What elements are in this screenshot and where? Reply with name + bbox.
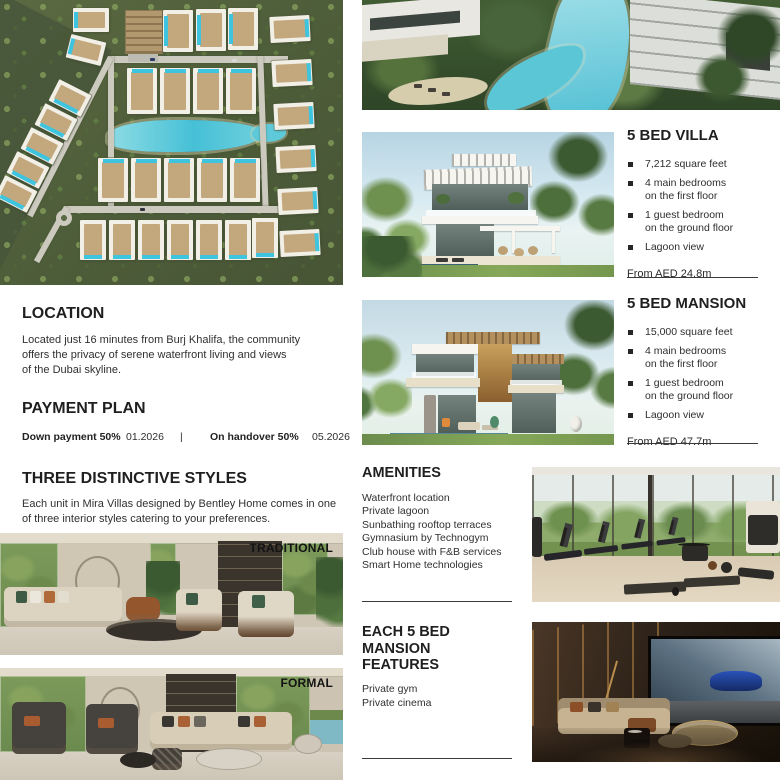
features-list: Private gym Private cinema <box>362 683 492 710</box>
cushion <box>238 716 250 727</box>
spec-item: 7,212 square feet <box>627 158 761 171</box>
lounger <box>428 88 436 92</box>
villa-block <box>228 8 258 50</box>
villa-block <box>279 229 320 257</box>
villa-block <box>163 10 193 52</box>
cushion <box>570 702 583 712</box>
styles-section: THREE DISTINCTIVE STYLES Each unit in Mi… <box>22 470 362 527</box>
cushion <box>252 595 265 608</box>
mansion-slab <box>508 385 564 393</box>
cross-trainer <box>532 517 542 557</box>
amenity-item: Smart Home technologies <box>362 559 520 573</box>
bullet-square-icon <box>628 213 633 218</box>
foreground-plants <box>362 236 422 277</box>
mansion-center-tower <box>478 344 512 402</box>
down-payment-label: Down payment 50% <box>22 431 121 443</box>
canopy-column <box>552 231 555 253</box>
spec-item: 15,000 square feet <box>627 326 761 339</box>
sun-lounger <box>452 258 464 262</box>
car-dot <box>232 59 237 62</box>
cushion <box>606 702 619 712</box>
rattan-chair <box>528 246 538 255</box>
payment-plan-row: Down payment 50% 01.2026 | On handover 5… <box>22 431 352 445</box>
bullet-square-icon <box>628 245 633 250</box>
kettlebell <box>672 587 679 596</box>
villa-block <box>271 59 312 87</box>
cushion <box>16 591 27 603</box>
cushion <box>58 591 69 603</box>
leather-ottoman <box>126 597 160 621</box>
mansion-wood-roof <box>446 332 540 344</box>
villa-block <box>273 102 314 130</box>
armchair <box>238 591 294 637</box>
lagoon-hero-image <box>362 0 780 110</box>
villa-block <box>193 68 223 114</box>
amenity-item: Sunbathing rooftop terraces <box>362 519 520 533</box>
amenity-item: Gymnasium by Technogym <box>362 532 520 546</box>
payment-plan-section: PAYMENT PLAN Down payment 50% 01.2026 | … <box>22 400 352 445</box>
patterned-pouf <box>152 748 182 770</box>
screen-car <box>710 671 762 691</box>
side-table <box>294 734 322 754</box>
features-title: EACH 5 BED MANSION FEATURES <box>362 624 492 674</box>
car-dot <box>140 208 145 211</box>
gym-image <box>532 467 780 602</box>
villa-block <box>73 8 109 32</box>
lounger <box>414 84 422 88</box>
villa-roof-canopy <box>452 154 516 166</box>
egg-chair-green <box>490 416 499 428</box>
treadmill <box>584 525 618 553</box>
bullet-square-icon <box>628 413 633 418</box>
dark-armchair <box>12 702 66 754</box>
formal-interior-image: FORMAL <box>0 668 343 780</box>
mansion-render-image <box>362 300 614 445</box>
balcony-planter <box>508 192 524 204</box>
palm-overlay <box>694 0 780 110</box>
cushion <box>98 718 114 728</box>
bullet-square-icon <box>628 181 633 186</box>
bullet-square-icon <box>628 349 633 354</box>
villa-block <box>197 158 227 202</box>
location-title: LOCATION <box>22 305 342 323</box>
villa-block <box>98 158 128 202</box>
treadmill <box>544 527 582 558</box>
masterplan-aerial-image <box>0 0 343 285</box>
villa-block <box>80 220 106 260</box>
car-dot <box>150 58 155 61</box>
divider <box>362 758 512 759</box>
treadmill <box>657 520 686 544</box>
stone-pillar <box>424 395 436 435</box>
villa-block <box>226 68 256 114</box>
spec-item: 4 main bedrooms on the first floor <box>627 177 761 203</box>
masterplan-road <box>64 206 290 213</box>
feature-item: Private gym <box>362 683 492 697</box>
villa-block <box>196 9 226 51</box>
villa-block <box>252 218 278 258</box>
bullet-square-icon <box>628 162 633 167</box>
traditional-interior-image: TRADITIONAL <box>0 533 343 655</box>
palm-grove <box>362 320 412 440</box>
lawn <box>362 434 614 445</box>
villa-block <box>138 220 164 260</box>
villa-block <box>269 15 310 43</box>
spec-item: Lagoon view <box>627 409 761 422</box>
villa-block <box>196 220 222 260</box>
masterplan-roundabout <box>56 210 72 226</box>
villa-block <box>275 145 316 173</box>
palm-grove <box>530 132 614 254</box>
spec-item: 1 guest bedroom on the ground floor <box>627 377 761 403</box>
feature-item: Private cinema <box>362 697 492 711</box>
brochure-page: 5 BED VILLA 7,212 square feet 4 main bed… <box>0 0 780 780</box>
payment-separator: | <box>180 431 183 443</box>
styles-body: Each unit in Mira Villas designed by Ben… <box>22 497 362 527</box>
private-cinema-image <box>532 622 780 762</box>
lounger <box>442 92 450 96</box>
villa-title: 5 BED VILLA <box>627 128 761 145</box>
masterplan-clubhouse <box>125 10 163 54</box>
sun-lounger <box>436 258 448 262</box>
palm-grove <box>554 300 614 430</box>
amenity-item: Club house with F&B services <box>362 546 520 560</box>
styles-title: THREE DISTINCTIVE STYLES <box>22 470 362 488</box>
cushion <box>194 716 206 727</box>
amenity-item: Private lagoon <box>362 505 520 519</box>
villa-block <box>225 220 251 260</box>
medicine-ball <box>721 562 732 573</box>
villa-block <box>131 158 161 202</box>
bullet-square-icon <box>628 381 633 386</box>
barbell <box>678 543 710 546</box>
spec-item: 4 main bedrooms on the first floor <box>627 345 761 371</box>
villa-block <box>277 187 318 215</box>
side-table <box>120 752 156 768</box>
location-section: LOCATION Located just 16 minutes from Bu… <box>22 305 342 378</box>
mansion-slab <box>406 378 480 387</box>
ground-glass <box>512 393 556 433</box>
villa-block <box>160 68 190 114</box>
rattan-chair <box>498 246 508 255</box>
amenities-section: AMENITIES Waterfront location Private la… <box>362 466 520 573</box>
cushion <box>178 716 190 727</box>
amenities-title: AMENITIES <box>362 466 520 482</box>
villa-render-image <box>362 132 614 277</box>
gym-floor <box>532 556 780 602</box>
weight-rack <box>748 515 778 545</box>
bullet-square-icon <box>628 330 633 335</box>
egg-sculpture <box>570 416 582 432</box>
features-section: EACH 5 BED MANSION FEATURES Private gym … <box>362 624 492 710</box>
traditional-label: TRADITIONAL <box>249 541 333 555</box>
cinema-carpet <box>532 728 780 762</box>
villa-spec-column: 5 BED VILLA 7,212 square feet 4 main bed… <box>627 128 761 280</box>
terrace-sofa <box>458 422 480 430</box>
cushion <box>254 716 266 727</box>
mansion-spec-column: 5 BED MANSION 15,000 square feet 4 main … <box>627 296 761 448</box>
divider <box>362 601 512 602</box>
location-body: Located just 16 minutes from Burj Khalif… <box>22 333 342 378</box>
payment-plan-title: PAYMENT PLAN <box>22 400 352 418</box>
weight-bench <box>682 545 708 561</box>
villa-block <box>230 158 260 202</box>
marble-table <box>196 748 262 770</box>
amenities-list: Waterfront location Private lagoon Sunba… <box>362 492 520 573</box>
cushion <box>44 591 55 603</box>
sand-beach <box>387 73 489 109</box>
car-dot <box>240 208 245 211</box>
divider <box>627 443 758 444</box>
cushion <box>162 716 174 727</box>
villa-block <box>127 68 157 114</box>
villa-block <box>109 220 135 260</box>
cushion <box>24 716 40 726</box>
spec-item: Lagoon view <box>627 241 761 254</box>
terrace-canopy <box>480 226 560 231</box>
balcony-planter <box>436 194 450 204</box>
mansion-left-canopy <box>412 344 478 354</box>
formal-label: FORMAL <box>280 676 333 690</box>
amenity-item: Waterfront location <box>362 492 520 506</box>
villa-spec-list: 7,212 square feet 4 main bedrooms on the… <box>627 158 761 254</box>
handover-label: On handover 50% <box>210 431 299 443</box>
cushion <box>588 702 601 712</box>
indoor-plant <box>316 557 343 629</box>
spec-item: 1 guest bedroom on the ground floor <box>627 209 761 235</box>
armchair <box>176 589 222 631</box>
treadmill <box>621 522 652 548</box>
down-payment-date: 01.2026 <box>126 431 164 443</box>
villa-block <box>164 158 194 202</box>
handover-date: 05.2026 <box>312 431 350 443</box>
villa-mid-slab <box>422 216 538 224</box>
divider <box>627 277 758 278</box>
mansion-title: 5 BED MANSION <box>627 296 761 313</box>
medicine-ball <box>708 561 717 570</box>
dark-armchair <box>86 704 138 754</box>
mansion-spec-list: 15,000 square feet 4 main bedrooms on th… <box>627 326 761 422</box>
fireplace-glow <box>442 418 450 427</box>
cushion <box>30 591 41 603</box>
cushion <box>186 593 198 605</box>
mansion-right-canopy <box>510 354 564 364</box>
mansion-price: From AED 47.7m <box>627 436 761 448</box>
villa-block <box>167 220 193 260</box>
